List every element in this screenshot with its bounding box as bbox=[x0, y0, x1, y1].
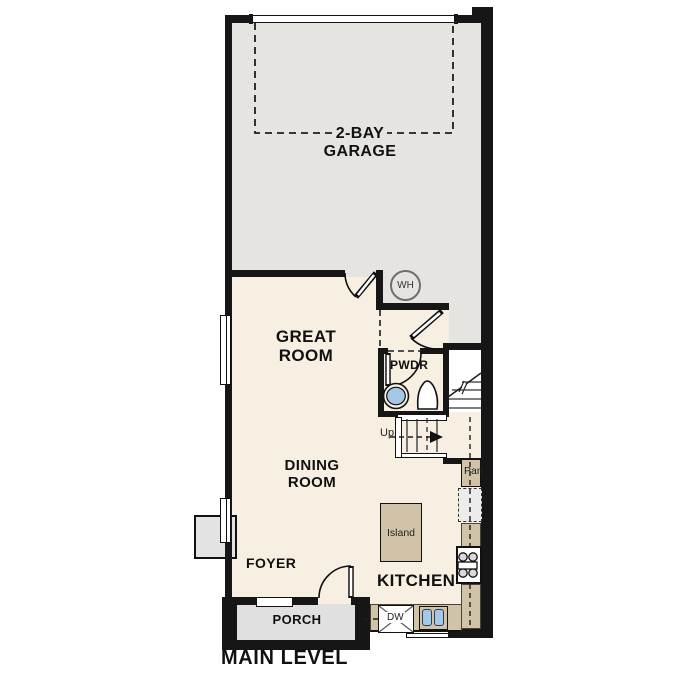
stair-nosing bbox=[397, 414, 447, 421]
wall bbox=[376, 303, 449, 310]
garage-floor-lower-right bbox=[449, 277, 481, 350]
sink-basin bbox=[434, 609, 444, 626]
garage-door bbox=[251, 15, 456, 23]
wall bbox=[378, 348, 384, 417]
great-room-label: GREAT ROOM bbox=[254, 327, 358, 365]
kitchen-island: Island bbox=[380, 503, 422, 562]
wall bbox=[378, 348, 388, 354]
garage-door-post bbox=[454, 14, 458, 24]
wall bbox=[232, 270, 345, 277]
pantry-label: Pan bbox=[464, 465, 483, 477]
porch-step bbox=[256, 597, 293, 607]
stairwell-upper bbox=[449, 350, 481, 412]
window-sash bbox=[226, 499, 227, 542]
wall bbox=[443, 343, 493, 350]
dining-room-label: DINING ROOM bbox=[260, 458, 364, 492]
window-sash bbox=[226, 316, 227, 384]
island-label: Island bbox=[387, 527, 415, 539]
counter bbox=[461, 523, 481, 547]
garage-label-line2: GARAGE bbox=[324, 143, 397, 160]
kitchen-label: KITCHEN bbox=[377, 571, 455, 590]
garage-label-line1: 2-BAY bbox=[333, 125, 388, 142]
counter bbox=[461, 584, 481, 629]
page-title: MAIN LEVEL bbox=[221, 647, 348, 670]
wall bbox=[481, 7, 493, 638]
window bbox=[220, 498, 231, 543]
porch-label: PORCH bbox=[252, 613, 342, 628]
refrigerator bbox=[458, 488, 482, 522]
water-heater-label: WH bbox=[397, 280, 414, 291]
stair-riser bbox=[395, 417, 402, 458]
foyer-label: FOYER bbox=[246, 556, 296, 572]
window bbox=[220, 315, 231, 385]
water-heater-symbol: WH bbox=[390, 270, 421, 301]
powder-room-label: PWDR bbox=[390, 359, 428, 373]
dishwasher-label: DW bbox=[386, 612, 405, 623]
stairs-up-label: Up bbox=[380, 427, 394, 439]
garage-room-label: 2-BAY GARAGE bbox=[290, 125, 430, 161]
sink-basin bbox=[422, 609, 432, 626]
garage-door-post bbox=[249, 14, 253, 24]
wall bbox=[443, 348, 449, 417]
range-icon bbox=[456, 546, 482, 584]
stair-nosing bbox=[397, 453, 447, 458]
floor-plan: Island WH bbox=[0, 0, 687, 687]
window-sash bbox=[407, 633, 448, 634]
